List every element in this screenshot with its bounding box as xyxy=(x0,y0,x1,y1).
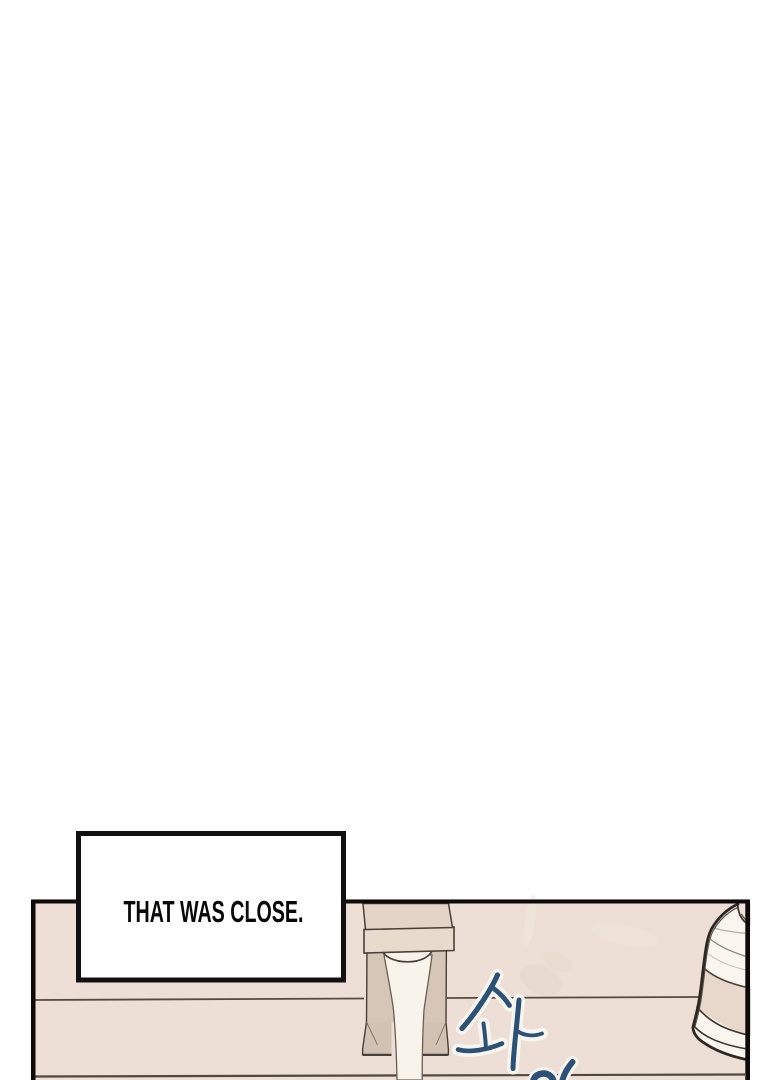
svg-text:THAT WAS CLOSE.: THAT WAS CLOSE. xyxy=(124,894,304,929)
